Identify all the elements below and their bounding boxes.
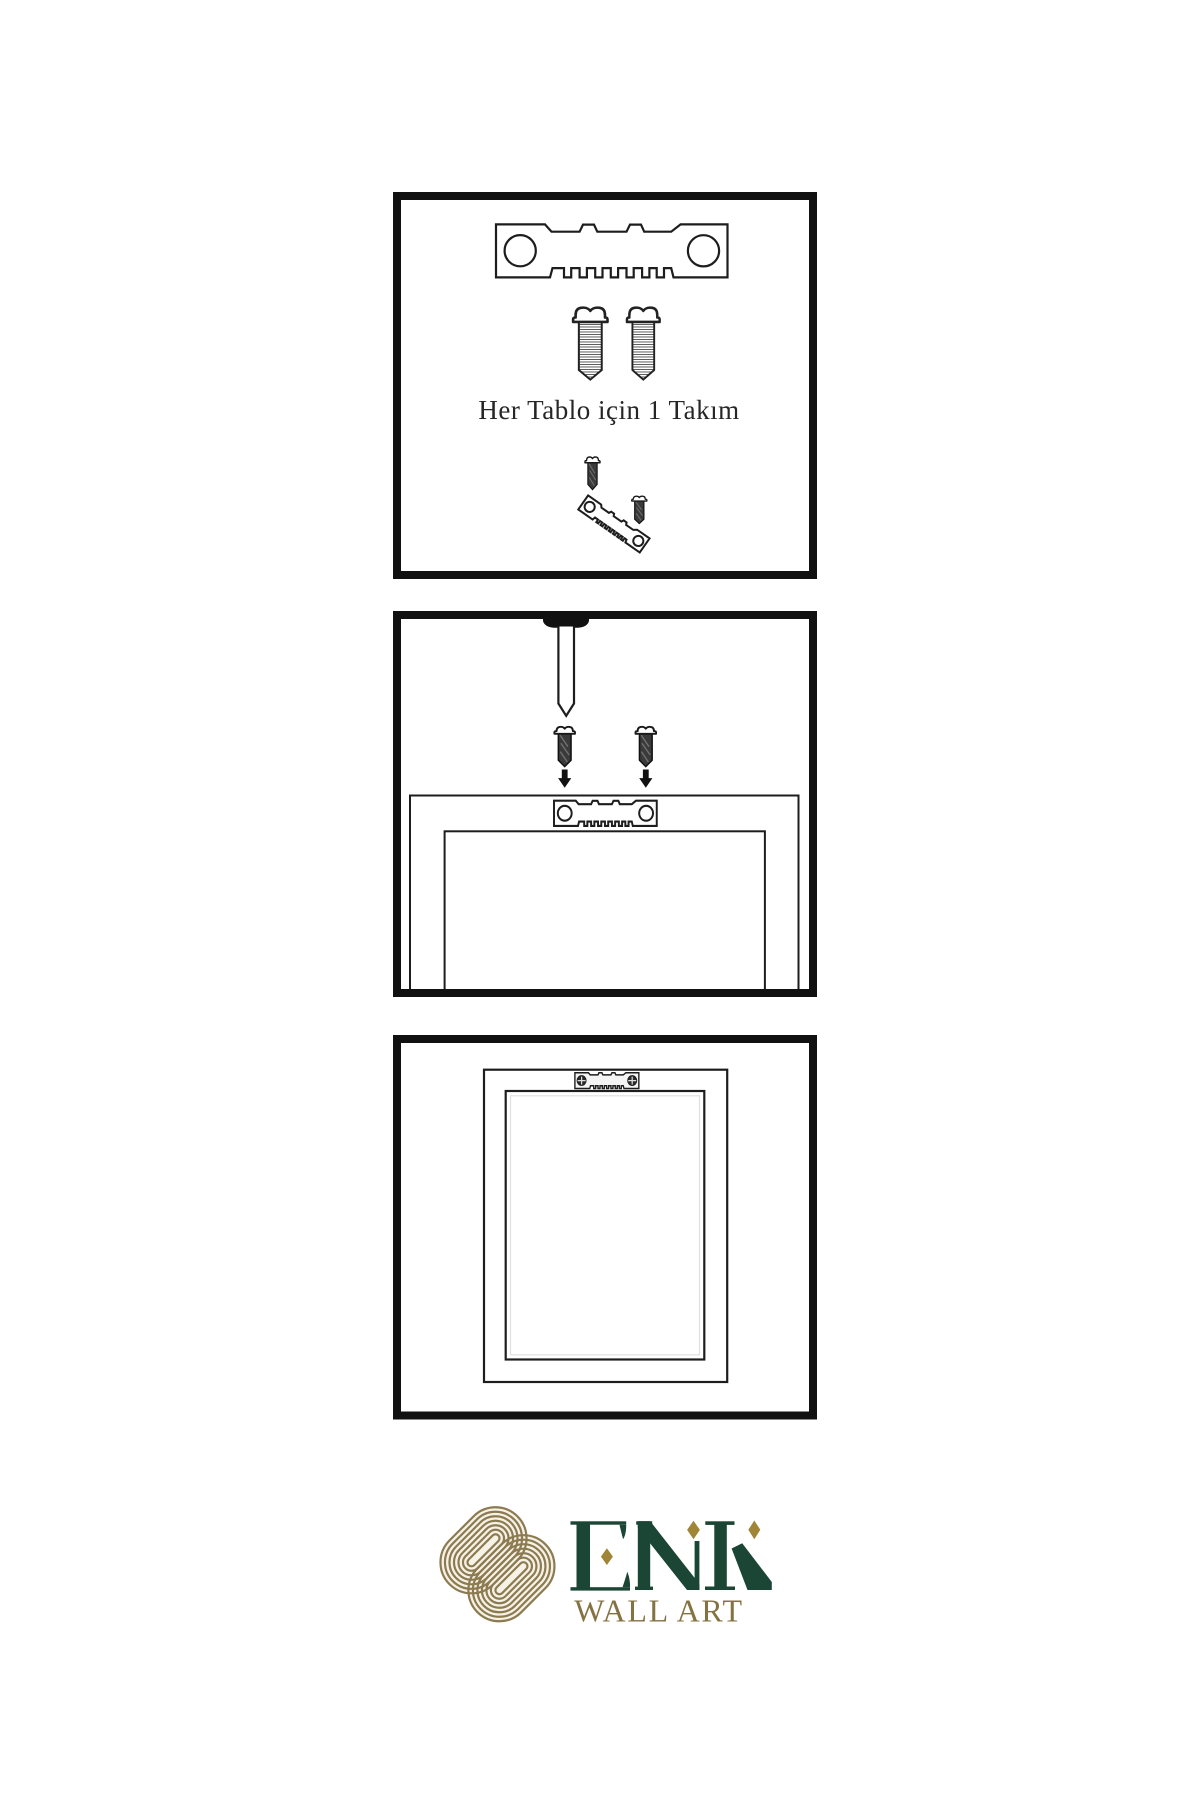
svg-text:Her Tablo için 1 Takım: Her Tablo için 1 Takım — [478, 395, 739, 425]
svg-text:WALL ART: WALL ART — [574, 1593, 744, 1629]
